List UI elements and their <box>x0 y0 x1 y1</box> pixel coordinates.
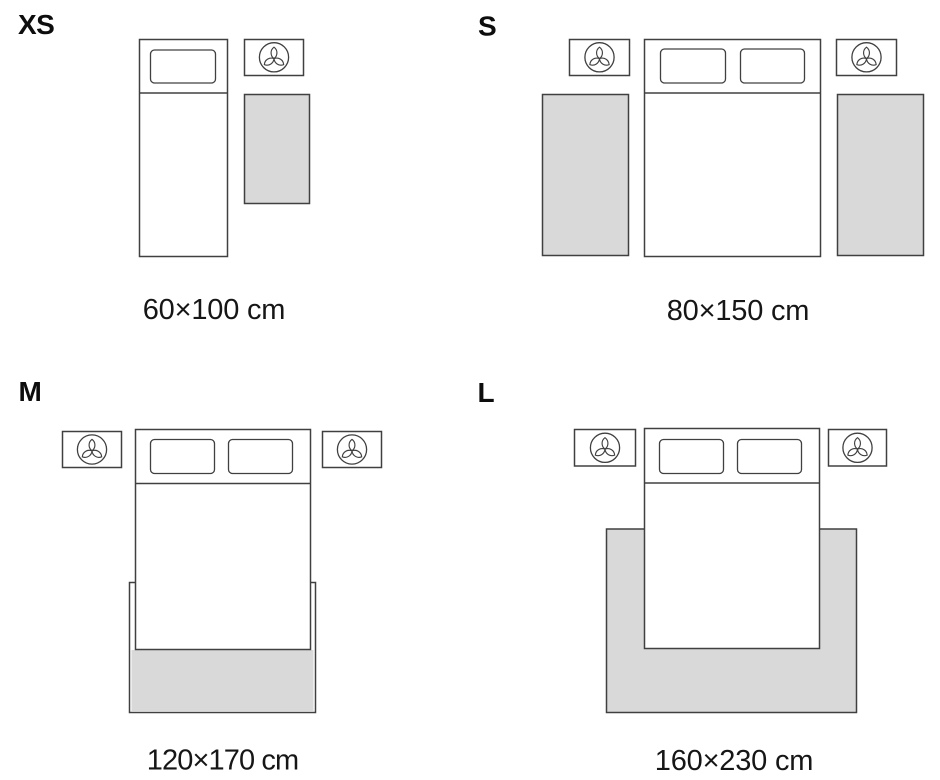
svg-text:M: M <box>19 376 42 407</box>
svg-text:60×100 cm: 60×100 cm <box>143 294 286 326</box>
svg-text:80×150 cm: 80×150 cm <box>667 295 810 327</box>
svg-text:XS: XS <box>18 9 54 40</box>
svg-text:160×230 cm: 160×230 cm <box>655 745 813 777</box>
svg-text:120×170 cm: 120×170 cm <box>147 745 298 777</box>
svg-text:S: S <box>478 11 496 42</box>
svg-text:L: L <box>478 377 495 408</box>
